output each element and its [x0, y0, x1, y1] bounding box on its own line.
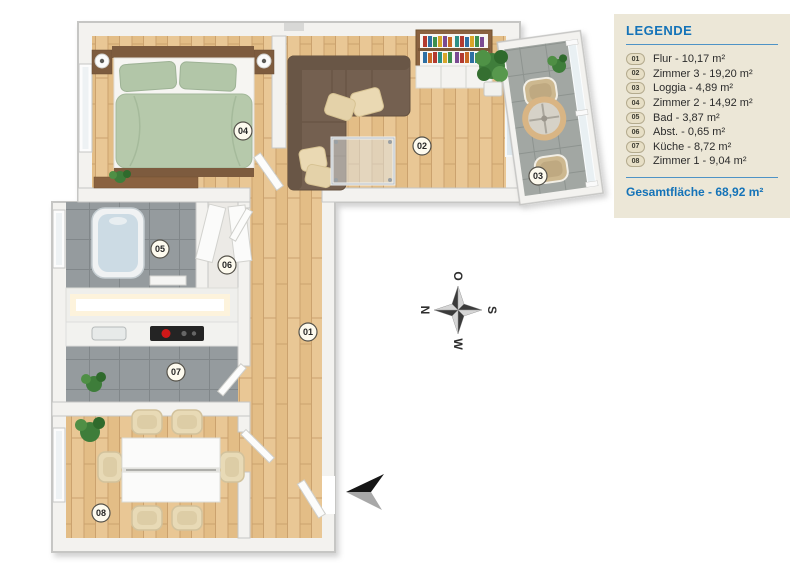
room-label: Flur - 10,17 m²: [653, 53, 725, 65]
dining-chair: [220, 452, 244, 482]
coffee-table: [332, 138, 394, 184]
room-label: Küche - 8,72 m²: [653, 141, 731, 153]
room-badge-08: 08: [92, 504, 110, 522]
room-label: Abst. - 0,65 m²: [653, 126, 725, 138]
room-number-badge: 03: [626, 82, 645, 94]
room-label: Zimmer 2 - 14,92 m²: [653, 97, 753, 109]
legend-row-bad: 05 Bad - 3,87 m²: [626, 110, 778, 125]
room-07-floor: [66, 346, 238, 402]
compass-south-label: S: [485, 306, 499, 314]
cooktop: [150, 326, 204, 341]
svg-text:05: 05: [155, 244, 165, 254]
legend-panel: LEGENDE 01 Flur - 10,17 m² 02 Zimmer 3 -…: [614, 14, 790, 218]
window-bedroom: [79, 64, 92, 152]
entrance-arrow-icon: [346, 474, 384, 510]
svg-text:06: 06: [222, 260, 232, 270]
room-label: Loggia - 4,89 m²: [653, 82, 733, 94]
svg-text:01: 01: [303, 327, 313, 337]
legend-row-zimmer2: 04 Zimmer 2 - 14,92 m²: [626, 96, 778, 111]
room-label: Bad - 3,87 m²: [653, 112, 720, 124]
bedroom-furniture: [92, 46, 274, 188]
svg-text:07: 07: [171, 367, 181, 377]
svg-text:03: 03: [533, 171, 543, 181]
compass-east-label: O: [451, 271, 465, 280]
legend-title: LEGENDE: [626, 23, 778, 38]
lamp-top: [262, 59, 266, 63]
sideboard: [94, 177, 198, 188]
dining-chair: [172, 410, 202, 434]
room-badge-02: 02: [413, 137, 431, 155]
legend-row-loggia: 03 Loggia - 4,89 m²: [626, 81, 778, 96]
kitchen-light-core: [76, 299, 224, 311]
room-badge-01: 01: [299, 323, 317, 341]
room-badge-07: 07: [167, 363, 185, 381]
dining-chair: [132, 506, 162, 530]
dining-table: [122, 438, 220, 502]
room-number-badge: 06: [626, 126, 645, 138]
room-label: Zimmer 3 - 19,20 m²: [653, 68, 753, 80]
room-badge-03: 03: [529, 167, 547, 185]
entrance-opening: [322, 476, 335, 514]
room-badge-04: 04: [234, 122, 252, 140]
svg-text:02: 02: [417, 141, 427, 151]
bath-shelf: [150, 276, 186, 285]
room-number-badge: 01: [626, 53, 645, 65]
compass-west-label: W: [451, 338, 465, 350]
room-number-badge: 05: [626, 112, 645, 124]
room-badge-06: 06: [218, 256, 236, 274]
total-area: Gesamtfläche - 68,92 m²: [626, 185, 778, 199]
legend-row-zimmer3: 02 Zimmer 3 - 19,20 m²: [626, 67, 778, 82]
svg-text:08: 08: [96, 508, 106, 518]
window-dining: [53, 428, 65, 502]
legend-row-kueche: 07 Küche - 8,72 m²: [626, 140, 778, 155]
legend-row-flur: 01 Flur - 10,17 m²: [626, 52, 778, 67]
kitchen-sink: [92, 327, 126, 340]
room-label: Zimmer 1 - 9,04 m²: [653, 155, 747, 167]
legend-divider: [626, 44, 778, 45]
legend-row-zimmer1: 08 Zimmer 1 - 9,04 m²: [626, 154, 778, 169]
room-badge-05: 05: [151, 240, 169, 258]
legend-divider: [626, 177, 778, 178]
floorplan-page: O S W N 01 02 03 04 05 06: [0, 0, 800, 565]
svg-text:04: 04: [238, 126, 248, 136]
bathtub: [92, 208, 144, 278]
window-bath: [53, 210, 65, 268]
room-number-badge: 02: [626, 68, 645, 80]
room-01-floor: [250, 188, 322, 538]
bed: [112, 46, 254, 177]
loggia-table: [523, 97, 566, 140]
room-number-badge: 07: [626, 141, 645, 153]
legend-row-abst: 06 Abst. - 0,65 m²: [626, 125, 778, 140]
lamp-top: [100, 59, 104, 63]
room-number-badge: 08: [626, 155, 645, 167]
dining-chair: [172, 506, 202, 530]
compass-rose: O S W N: [418, 271, 499, 350]
chimney-recess: [284, 23, 304, 31]
dining-chair: [98, 452, 122, 482]
room-number-badge: 04: [626, 97, 645, 109]
dining-chair: [132, 410, 162, 434]
compass-north-label: N: [418, 306, 432, 315]
